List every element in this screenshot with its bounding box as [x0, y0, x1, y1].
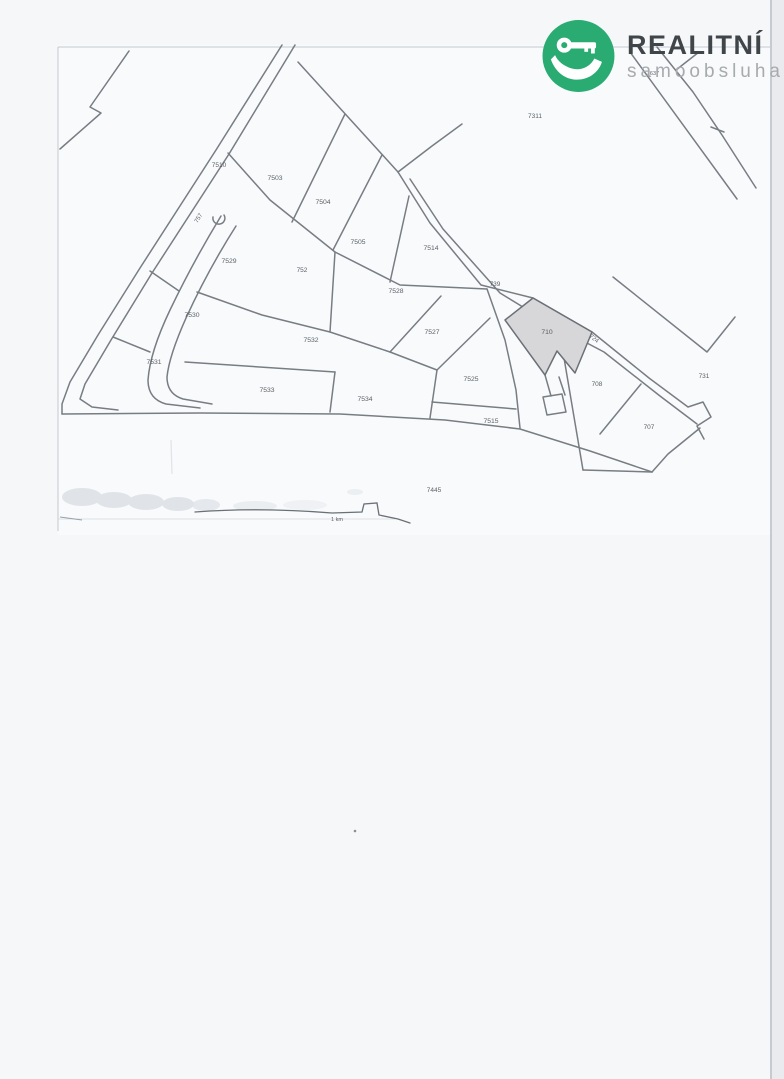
- parcel-label-7533: 7533: [259, 387, 274, 394]
- parcel-label-707: 707: [644, 424, 655, 431]
- parcel-label-7529: 7529: [221, 258, 236, 265]
- parcel-label-7525: 7525: [463, 376, 478, 383]
- scan-speck: [354, 830, 357, 833]
- parcel-label-7534: 7534: [357, 396, 372, 403]
- parcel-label-739: 739: [490, 281, 501, 288]
- parcel-label-710: 710: [541, 329, 553, 336]
- parcel-label-708: 708: [592, 381, 603, 388]
- parcel-label-7503: 7503: [267, 175, 282, 182]
- parcel-label-7531: 7531: [146, 359, 161, 366]
- parcel-label-7505: 7505: [350, 239, 365, 246]
- parcel-label-7311: 7311: [528, 113, 542, 120]
- scale-label: 1 km: [331, 517, 343, 523]
- parcel-label-7445: 7445: [427, 487, 442, 494]
- parcel-label-7527: 7527: [424, 329, 439, 336]
- parcel-label-7515: 7515: [483, 418, 498, 425]
- parcel-label-7510: 7510: [212, 162, 227, 169]
- parcel-label-7528: 7528: [388, 288, 403, 295]
- map-sheet: [58, 45, 771, 535]
- logo-sub-text: samoobsluha: [627, 62, 784, 81]
- parcel-label-7514: 7514: [423, 245, 438, 252]
- realitni-logo: REALITNÍ samoobsluha: [540, 8, 784, 104]
- cadastral-map: 7637731175107503750475775057514752975273…: [0, 0, 784, 1079]
- parcel-label-731: 731: [699, 373, 710, 380]
- logo-brand-text: REALITNÍ: [627, 32, 784, 59]
- key-in-hand-icon: [540, 10, 617, 102]
- parcel-label-7530: 7530: [184, 312, 199, 319]
- parcel-label-7504: 7504: [315, 199, 330, 206]
- parcel-label-752: 752: [297, 267, 308, 274]
- parcel-label-7532: 7532: [303, 337, 318, 344]
